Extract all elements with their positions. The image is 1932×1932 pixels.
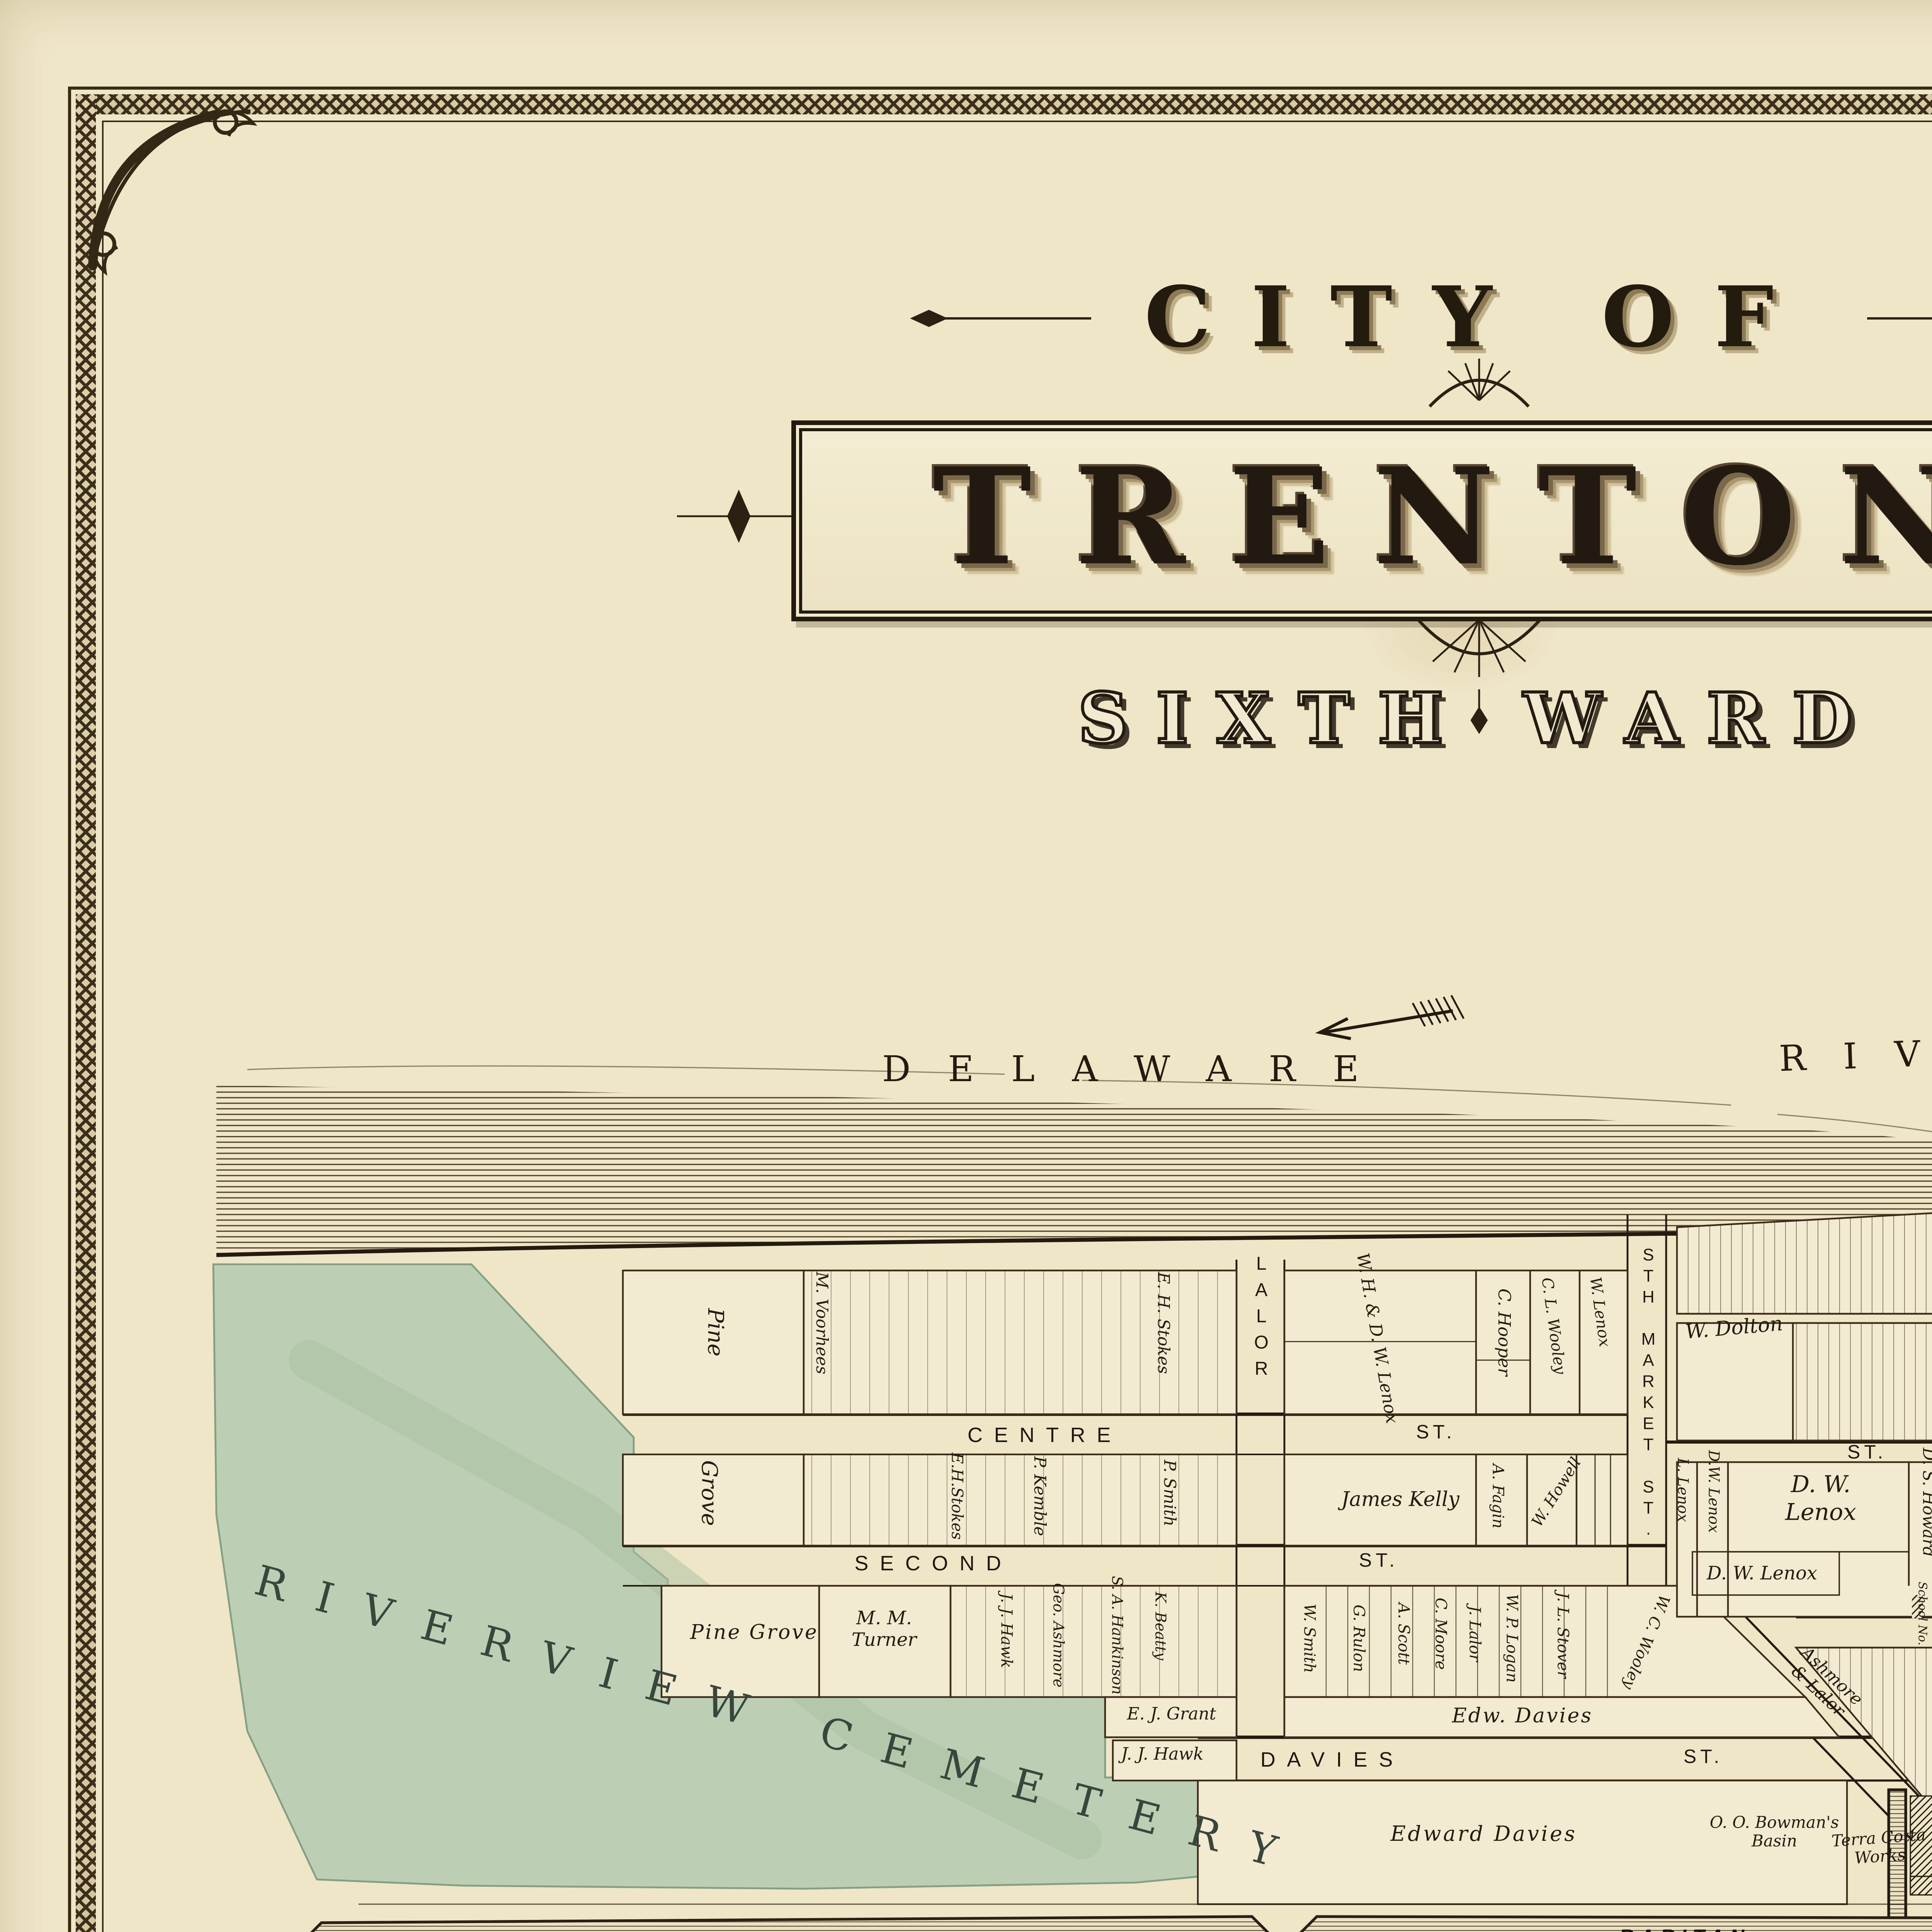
- label-canal-raritan: RARITAN: [1619, 1925, 1750, 1932]
- atlas-page: DELAWARERIVERTrenton Water Power Co.RACE…: [0, 0, 1932, 1932]
- label-eh-stokes-1: E. H. Stokes: [1153, 1272, 1172, 1374]
- label-c-moore: C. Moore: [1430, 1598, 1448, 1670]
- label-pine-grove: Pine Grove: [690, 1622, 818, 1645]
- title-sixth-ward: SIXTH WARD: [1078, 678, 1881, 760]
- label-jl-stover: J. L. Stover: [1552, 1592, 1570, 1678]
- label-davies-st-suffix: ST.: [1684, 1746, 1723, 1769]
- label-dw-lenox-v: D.W. Lenox: [1704, 1450, 1721, 1533]
- label-canal-amp: &: [1317, 1929, 1332, 1932]
- label-eh-stokes-2: E.H.Stokes: [946, 1452, 964, 1540]
- title-banner-panel: TRENTON: [791, 420, 1932, 621]
- label-a-fagin: A. Fagin: [1487, 1464, 1505, 1528]
- label-delaware-river: DELAWARE: [882, 1050, 1396, 1092]
- label-jj-hawk-2: J. J. Hawk: [1121, 1746, 1203, 1766]
- label-c-hooper: C. Hooper: [1492, 1289, 1512, 1376]
- label-dw-lenox-big: D. W. Lenox: [1785, 1472, 1856, 1527]
- label-centre-st-suffix: ST.: [1416, 1422, 1456, 1444]
- label-centre-st: CENTRE: [968, 1423, 1122, 1448]
- label-p-kemble: P. Kemble: [1029, 1456, 1048, 1536]
- label-g-rulon: G. Rulon: [1348, 1605, 1366, 1672]
- label-mm-turner: M. M. Turner: [852, 1607, 917, 1651]
- label-market-st: STH MARKET ST.: [1638, 1247, 1658, 1542]
- label-edw-davies: Edw. Davies: [1452, 1705, 1593, 1729]
- label-grove: Grove: [695, 1460, 721, 1526]
- label-k-beatty: K. Beatty: [1151, 1592, 1168, 1660]
- label-terra-cotta-works: Terra Cotta Works: [1831, 1826, 1928, 1871]
- label-sa-hankinson: S. A. Hankinson: [1107, 1576, 1125, 1694]
- map-sheet: DELAWARERIVERTrenton Water Power Co.RACE…: [0, 0, 1932, 1932]
- label-school-no: School No.: [1914, 1582, 1928, 1645]
- label-dw-lenox-strip: D. W. Lenox: [1707, 1563, 1817, 1585]
- label-second-st-left: SECOND: [854, 1552, 1012, 1577]
- title-trenton: TRENTON: [933, 440, 1932, 596]
- label-second-st-left-suffix: ST.: [1359, 1550, 1398, 1573]
- label-lalor-st: LALOR: [1250, 1253, 1272, 1384]
- delaware-river-shore: [216, 1066, 1932, 1255]
- label-geo-ashmore: Geo. Ashmore: [1049, 1583, 1066, 1687]
- label-l-lenox: L. Lenox: [1673, 1458, 1690, 1522]
- label-wp-logan: W. P. Logan: [1501, 1594, 1519, 1683]
- label-ej-grant: E. J. Grant: [1127, 1706, 1216, 1726]
- label-ds-howard: D. S. Howard: [1918, 1448, 1932, 1557]
- label-oo-bowmans-basin: O. O. Bowman's Basin: [1710, 1814, 1839, 1852]
- label-m-voorhees: M. Voorhees: [811, 1272, 830, 1374]
- label-j-lalor: J. Lalor: [1464, 1606, 1482, 1662]
- corner-ornament-tl: [93, 111, 253, 272]
- label-p-smith: P. Smith: [1159, 1460, 1178, 1526]
- label-james-kelly: James Kelly: [1341, 1489, 1459, 1512]
- label-pine: Pine: [701, 1308, 727, 1357]
- label-edward-davies: Edward Davies: [1390, 1824, 1577, 1849]
- label-st-centre-right: ST.: [1847, 1442, 1887, 1464]
- label-w-smith: W. Smith: [1298, 1604, 1316, 1673]
- river-flow-arrow: [1320, 995, 1464, 1039]
- label-davies-st: DAVIES: [1260, 1748, 1404, 1773]
- label-jj-hawk-v: J. J. Hawk: [995, 1593, 1014, 1668]
- title-city-of: CITY OF: [1145, 267, 1814, 366]
- label-a-scott: A. Scott: [1393, 1603, 1411, 1665]
